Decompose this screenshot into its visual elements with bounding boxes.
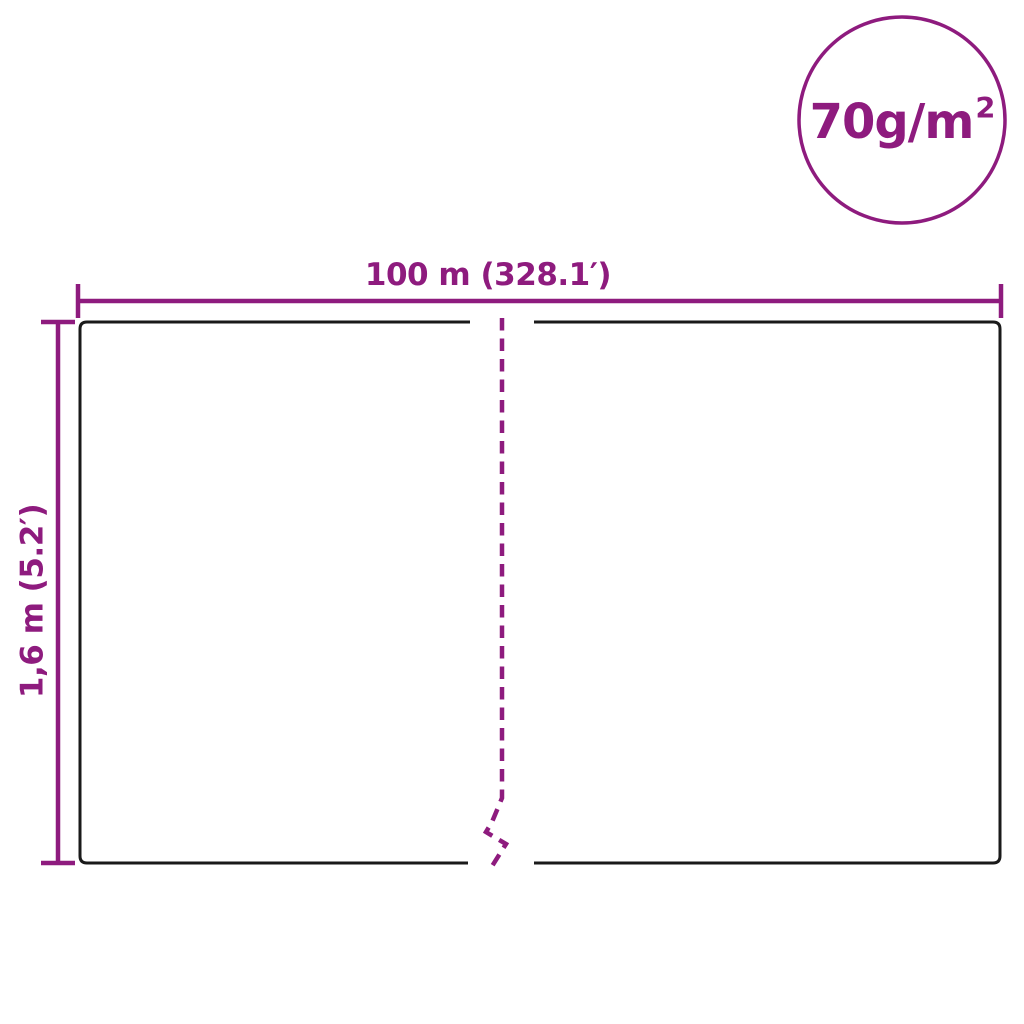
width-dimension-label: 100 m (328.1′) [365,260,611,291]
height-dimension-label: 1,6 m (5.2′) [18,504,49,698]
weight-superscript: 2 [975,91,994,125]
product-dimension-diagram: 100 m (328.1′) 1,6 m (5.2′) 70g/m2 [0,0,1024,1024]
break-dashed-line-icon [486,318,506,871]
weight-value: 70g/m [810,94,974,150]
weight-badge-label: 70g/m2 [810,98,995,146]
fabric-outline [80,322,1000,863]
diagram-graphics [0,0,1024,1024]
